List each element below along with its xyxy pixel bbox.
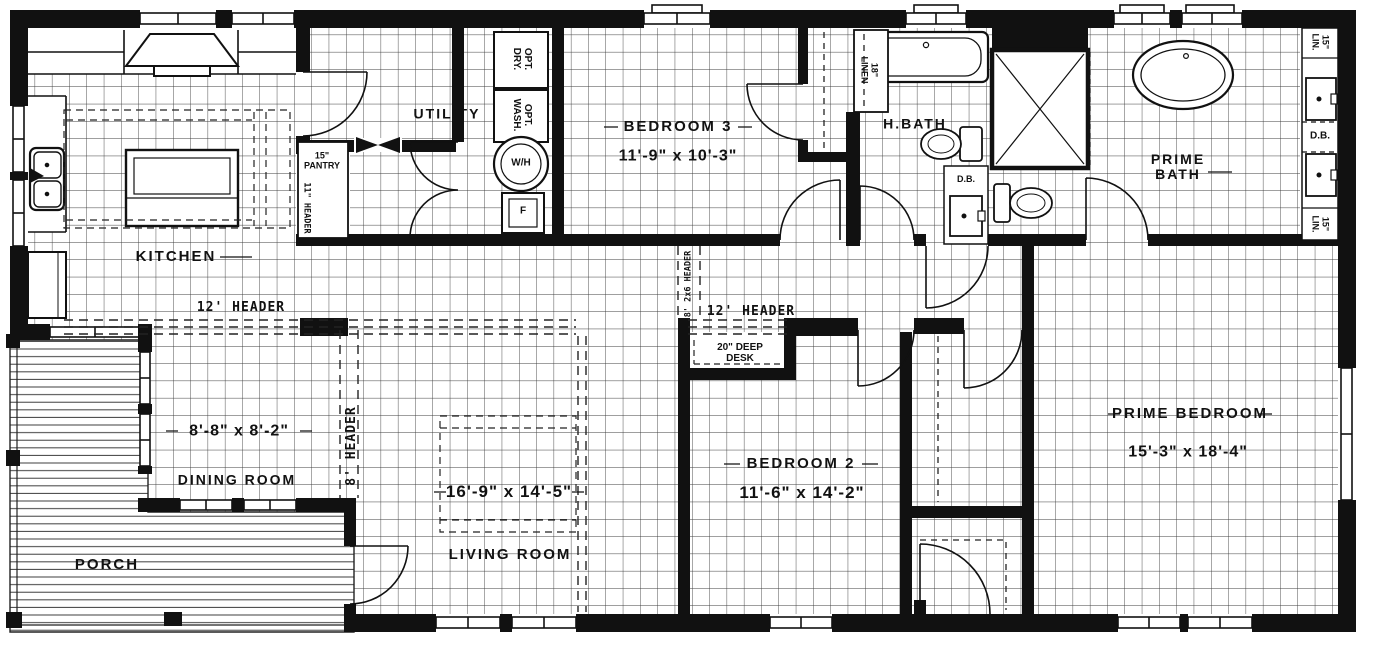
vanity-prime-bath (1302, 28, 1338, 240)
vent-bowtie-icon (354, 137, 402, 153)
washer-box (494, 90, 548, 142)
window (232, 13, 294, 24)
kitchen-sink (30, 148, 64, 210)
refrigerator (28, 252, 66, 318)
water-heater (494, 137, 548, 191)
window (436, 617, 500, 628)
window (140, 13, 216, 24)
shower-prime-bath (992, 50, 1090, 168)
toilet-hall-bath (921, 127, 982, 161)
window (244, 500, 296, 510)
window (140, 414, 150, 466)
porch-post (6, 612, 22, 628)
tub-prime-bath (1133, 41, 1233, 109)
dryer-box (494, 32, 548, 88)
window (1188, 617, 1252, 628)
window (644, 5, 710, 24)
vanity-hall-bath (944, 166, 988, 244)
window (1114, 5, 1170, 24)
window (1341, 368, 1352, 500)
porch-post (164, 612, 182, 626)
kitchen-island (126, 150, 238, 226)
porch-post (6, 450, 20, 466)
pantry-closet (298, 142, 348, 238)
window (13, 180, 24, 246)
window (50, 327, 140, 337)
floor-plan-drawing (0, 0, 1400, 655)
window (512, 617, 576, 628)
linen-closet (854, 30, 888, 112)
furnace-box (502, 193, 544, 233)
floor-plan: KITCHEN UTILITY BEDROOM 3 11'-9" x 10'-3… (0, 0, 1400, 655)
window (13, 106, 24, 172)
window (770, 617, 832, 628)
window (1182, 5, 1242, 24)
window (140, 352, 150, 404)
window (906, 5, 966, 24)
window (1118, 617, 1180, 628)
window (180, 500, 232, 510)
